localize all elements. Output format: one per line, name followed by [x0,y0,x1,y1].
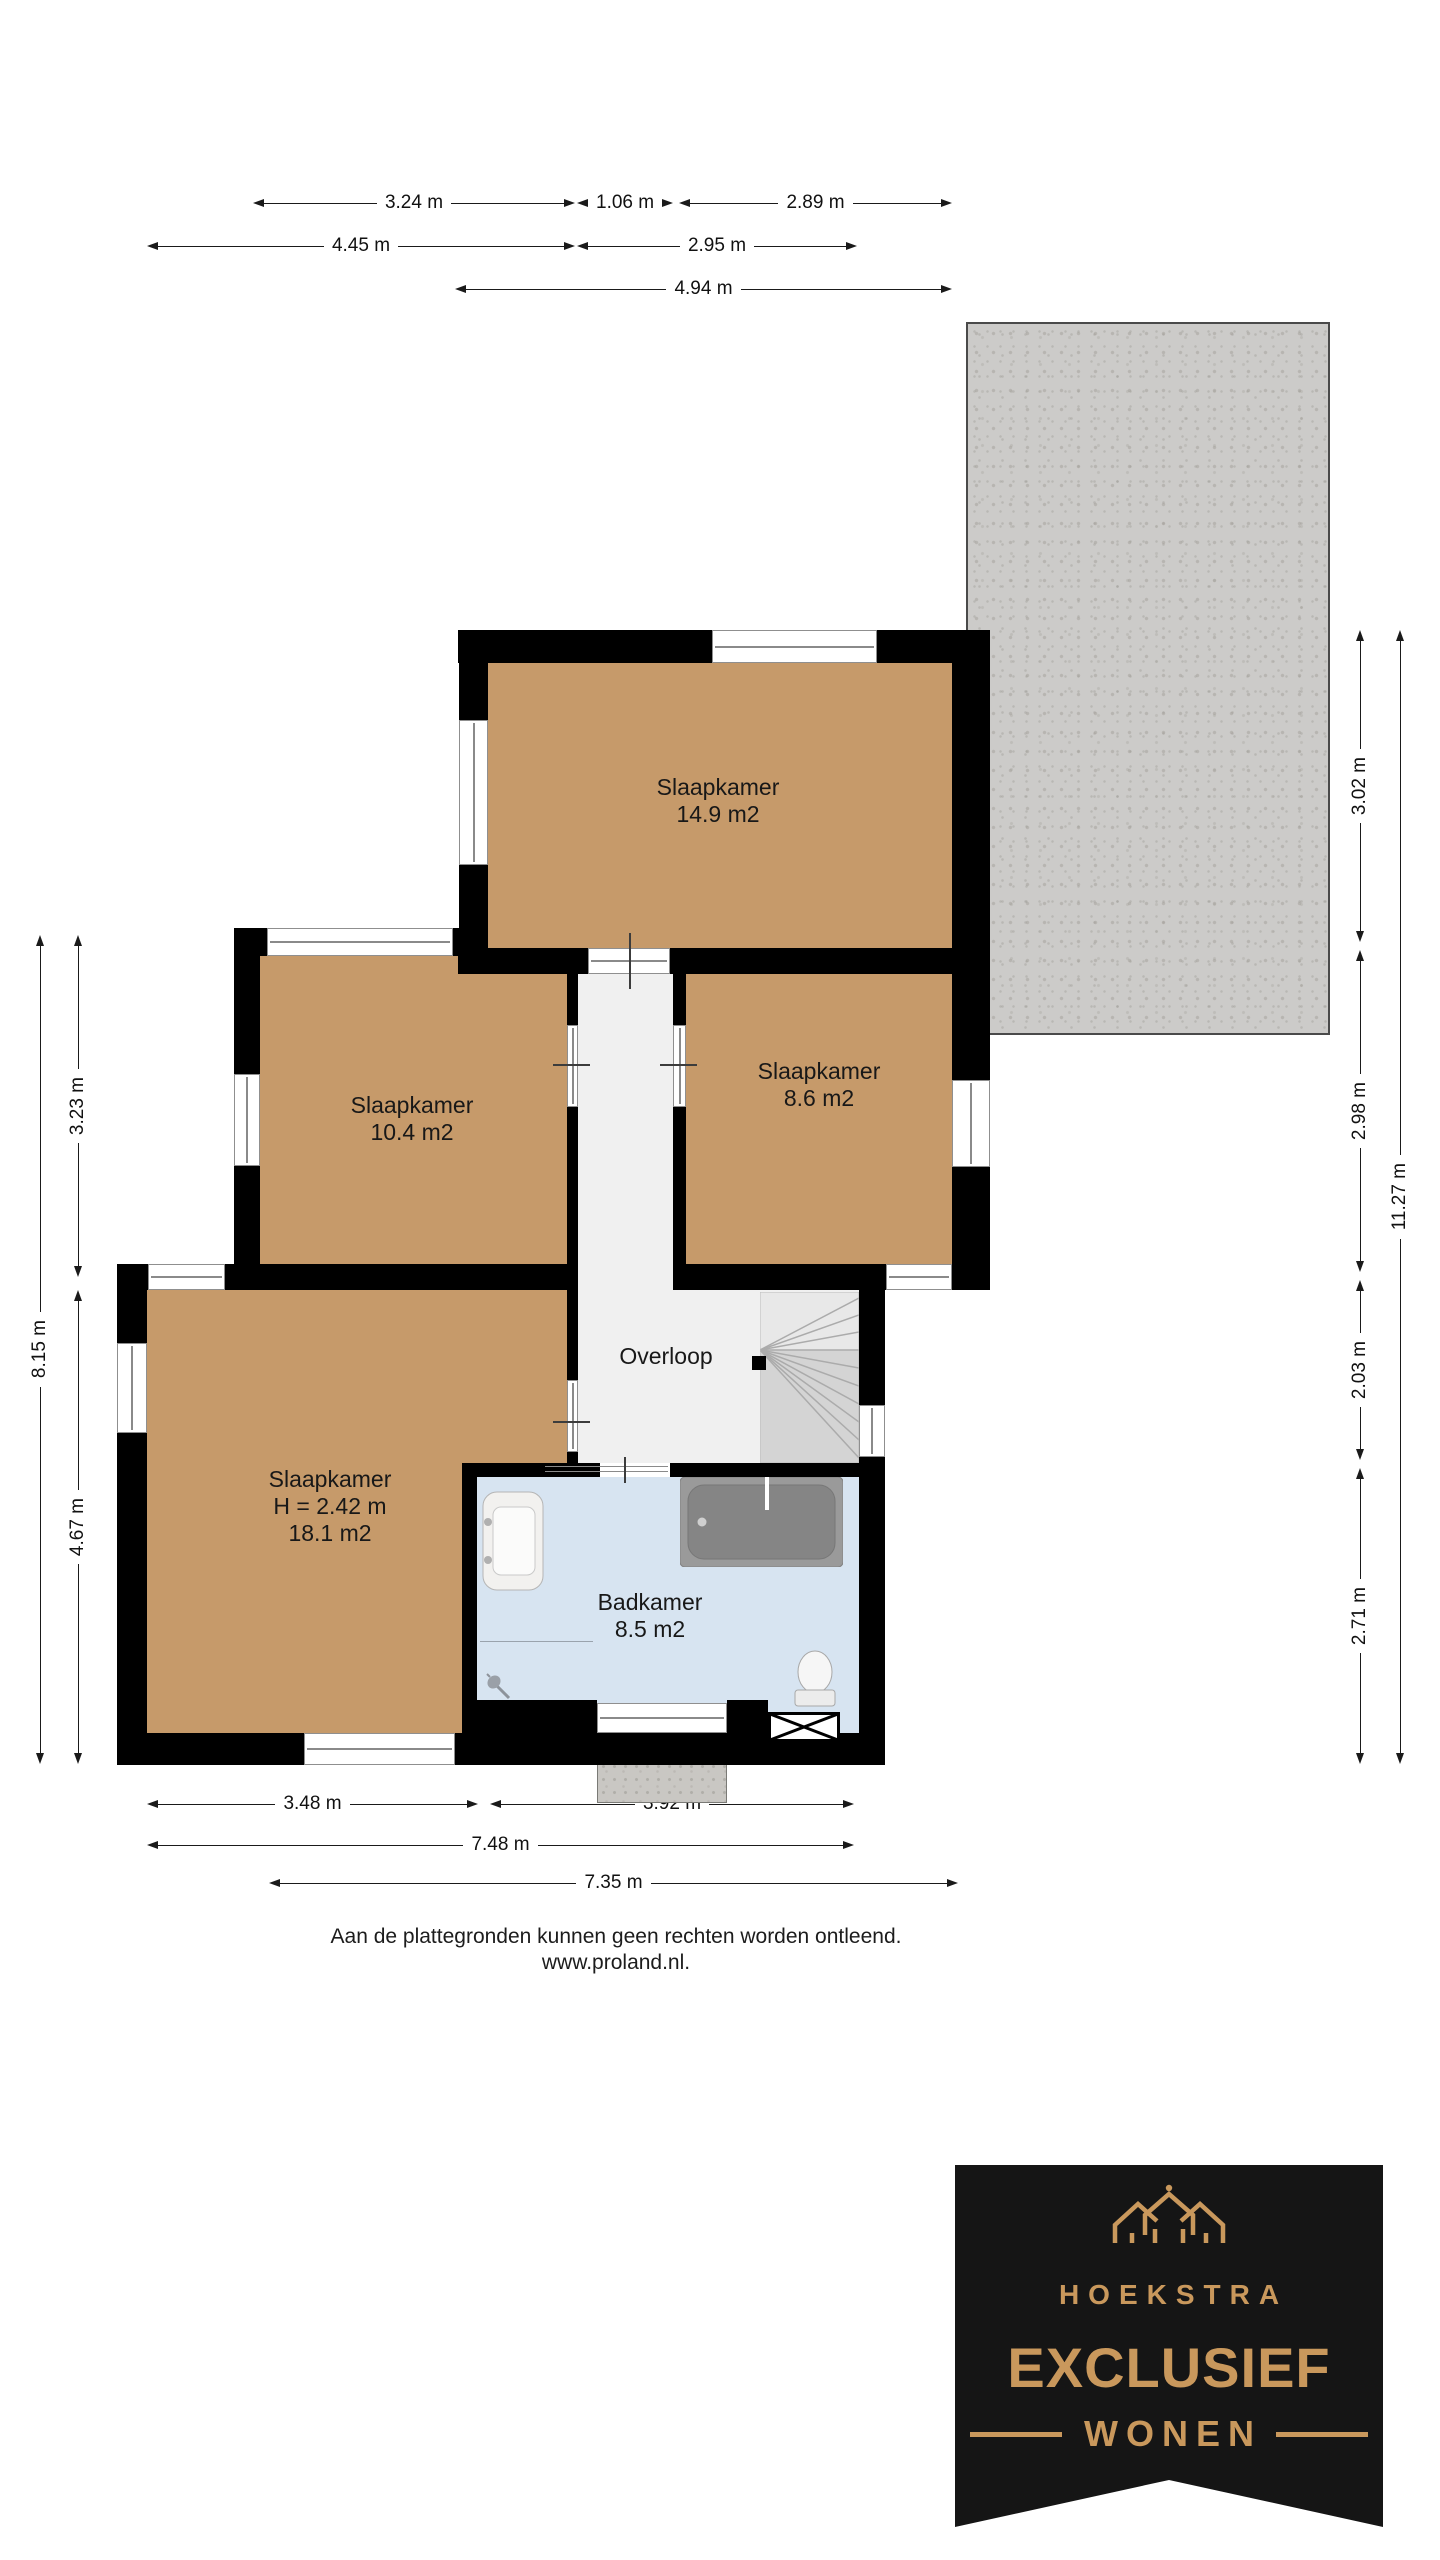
room-name: Slaapkamer [292,1092,532,1119]
room-label-bedroom-master: Slaapkamer H = 2.42 m 18.1 m2 [210,1466,450,1547]
room-name: Slaapkamer [699,1058,939,1085]
room-label-bedroom-right: Slaapkamer 8.6 m2 [699,1058,939,1112]
door-leaf [660,1064,697,1066]
dimension: 7.35 m [269,1873,958,1893]
logo-subtitle: WONEN [1076,2413,1262,2455]
dimension: 4.45 m [147,236,575,256]
window [712,630,877,663]
dimension: 11.27 m [1390,630,1410,1764]
room-area: 8.5 m2 [530,1616,770,1643]
window [459,720,488,865]
room-label-bedroom-top: Slaapkamer 14.9 m2 [598,774,838,828]
room-label-bedroom-left: Slaapkamer 10.4 m2 [292,1092,532,1146]
door-leaf [629,933,631,989]
logo-subtitle-row: WONEN [955,2413,1383,2455]
house-icon [1099,2181,1239,2251]
disclaimer-line2: www.proland.nl. [0,1950,1232,1976]
bedroom-right-floor [686,974,952,1264]
window [234,1074,260,1166]
sliding-door-rail [545,1471,668,1472]
shower-head-icon [483,1670,517,1704]
dimension: 7.48 m [147,1835,854,1855]
roof-access-window [886,1264,952,1290]
window [148,1264,225,1290]
room-area: 8.6 m2 [699,1085,939,1112]
room-name: Overloop [546,1343,786,1370]
disclaimer: Aan de plattegronden kunnen geen rechten… [0,1924,1232,1976]
room-name: Badkamer [530,1589,770,1616]
room-ceiling-height: H = 2.42 m [210,1493,450,1520]
door-bedroom-master [567,1380,578,1452]
floor-plan-page: Slaapkamer 14.9 m2 Slaapkamer 10.4 m2 Sl… [0,0,1440,2560]
wall [673,948,686,1290]
wall [465,1700,597,1733]
dimension: 2.89 m [679,193,952,213]
dimension: 3.23 m [68,935,88,1277]
door-leaf [553,1064,590,1066]
room-label-bathroom: Badkamer 8.5 m2 [530,1589,770,1643]
dimension: 4.94 m [455,279,952,299]
dimension: 3.24 m [253,193,575,213]
room-name: Slaapkamer [210,1466,450,1493]
sink [481,1490,545,1592]
disclaimer-line1: Aan de plattegronden kunnen geen rechten… [0,1924,1232,1950]
flat-roof-area [966,322,1330,1035]
door-bedroom-right [673,1025,686,1107]
window [267,928,453,956]
room-label-landing: Overloop [546,1343,786,1370]
wall [458,948,990,974]
gold-line-left [970,2432,1062,2437]
room-area: 14.9 m2 [598,801,838,828]
room-area: 18.1 m2 [210,1520,450,1547]
gold-line-right [1276,2432,1368,2437]
wall [462,1463,477,1733]
dimension: 8.15 m [30,935,50,1764]
door-leaf [624,1457,626,1483]
dimension: 3.48 m [147,1794,478,1814]
room-name: Slaapkamer [598,774,838,801]
wall [859,1290,885,1765]
logo-title: EXCLUSIEF [955,2335,1383,2400]
wall [727,1700,768,1733]
dimension: 2.95 m [577,236,857,256]
roof-hatch [768,1712,840,1742]
door-bedroom-left [567,1025,578,1107]
toilet [792,1646,838,1708]
dimension: 4.67 m [68,1290,88,1764]
wall [117,1264,147,1765]
dimension: 1.06 m [577,193,677,213]
window [952,1080,990,1167]
dormer-window [597,1703,727,1733]
window [304,1733,455,1765]
door-leaf [553,1421,590,1423]
dimension: 2.71 m [1350,1468,1370,1764]
room-area: 10.4 m2 [292,1119,532,1146]
bathtub [680,1477,843,1567]
window [117,1343,147,1433]
window [859,1405,885,1457]
dimension: 2.98 m [1350,950,1370,1272]
landing-floor [578,960,673,1463]
dimension: 3.02 m [1350,630,1370,942]
logo-banner: HOEKSTRA EXCLUSIEF WONEN [955,2165,1383,2527]
staircase [760,1292,859,1463]
dimension: 2.03 m [1350,1280,1370,1460]
sliding-door-rail [545,1466,668,1467]
logo-brand: HOEKSTRA [955,2279,1383,2311]
bedroom-master-floor-upper [147,1290,567,1463]
